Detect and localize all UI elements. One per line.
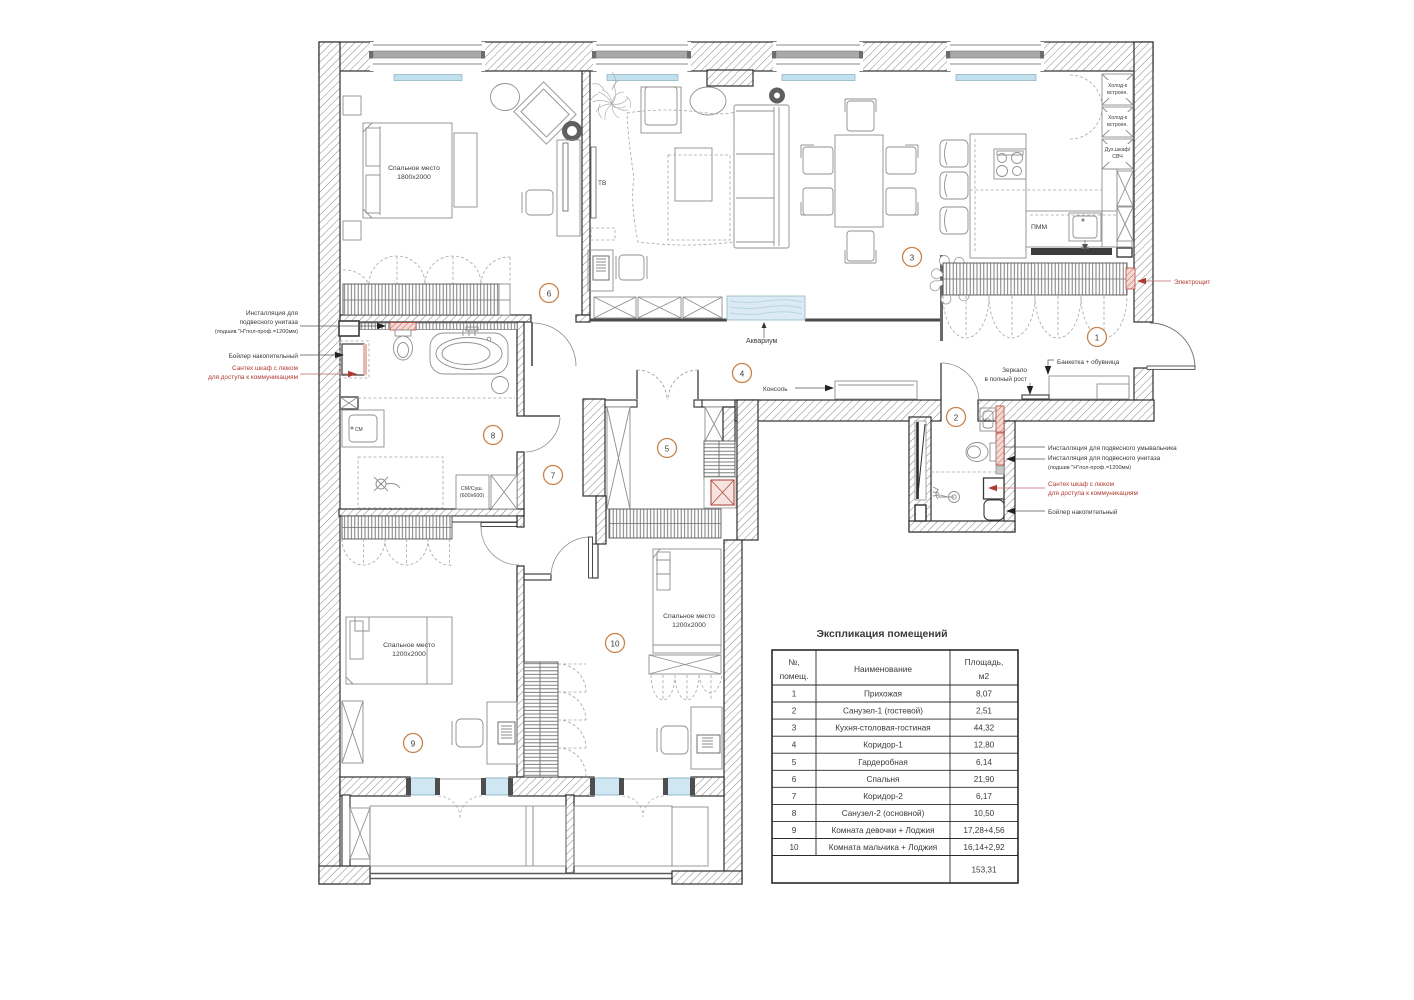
svg-text:Наименование: Наименование [854,664,912,674]
svg-text:СМ: СМ [355,427,363,433]
svg-text:2,51: 2,51 [976,707,992,716]
svg-text:8: 8 [792,809,797,818]
svg-text:1: 1 [792,690,797,699]
svg-text:Спальное место: Спальное место [388,165,440,172]
svg-text:1800х2000: 1800х2000 [397,174,431,181]
svg-text:Инсталляция для подвесного уни: Инсталляция для подвесного унитаза [1048,455,1161,462]
svg-text:44,32: 44,32 [974,724,995,733]
svg-text:Консоль: Консоль [763,386,788,393]
svg-text:153,31: 153,31 [971,866,996,875]
svg-text:6: 6 [547,290,552,299]
svg-text:ТВ: ТВ [598,180,606,187]
svg-text:1: 1 [1095,334,1100,343]
svg-text:№,: №, [788,657,799,667]
svg-text:12,80: 12,80 [974,741,995,750]
svg-text:СВЧ: СВЧ [1112,154,1123,160]
svg-text:16,14+2,92: 16,14+2,92 [963,843,1005,852]
svg-text:помещ.: помещ. [780,671,809,681]
svg-text:Аквариум: Аквариум [746,338,777,345]
svg-text:5: 5 [665,445,670,454]
svg-text:8: 8 [491,432,496,441]
svg-text:для доступа к коммуникациям: для доступа к коммуникациям [208,374,298,381]
svg-text:Электрощит: Электрощит [1174,279,1210,286]
svg-text:Спальное место: Спальное место [663,613,715,620]
svg-text:м2: м2 [979,671,990,681]
svg-text:Инсталляция для: Инсталляция для [246,310,299,317]
svg-text:4: 4 [740,370,745,379]
svg-text:встроен.: встроен. [1107,90,1128,96]
svg-text:для доступа к коммуникациям: для доступа к коммуникациям [1048,490,1138,497]
svg-text:Банкетка + обувница: Банкетка + обувница [1057,358,1120,366]
svg-text:5: 5 [792,758,797,767]
svg-text:(подшив "Н"пол-проф.=1200мм): (подшив "Н"пол-проф.=1200мм) [1048,465,1131,471]
svg-text:7: 7 [792,792,797,801]
svg-text:СМ/Суш.: СМ/Суш. [461,486,483,492]
svg-text:Зеркало: Зеркало [1002,367,1027,374]
svg-text:Сантех шкаф с люком: Сантех шкаф с люком [1048,481,1114,488]
svg-text:Комната девочки + Лоджия: Комната девочки + Лоджия [831,826,934,835]
svg-text:1200х2000: 1200х2000 [672,622,706,629]
svg-text:Комната мальчика + Лоджия: Комната мальчика + Лоджия [829,843,938,852]
svg-text:МСХ: МСХ [983,418,991,422]
svg-text:Прихожая: Прихожая [864,690,902,699]
svg-text:8,07: 8,07 [976,690,992,699]
svg-text:Инсталляция для подвесного умы: Инсталляция для подвесного умывальника [1048,445,1177,452]
svg-text:1200х2000: 1200х2000 [392,651,426,658]
svg-text:10: 10 [789,843,799,852]
svg-text:Площадь,: Площадь, [965,657,1004,667]
svg-text:Санузел-1 (гостевой): Санузел-1 (гостевой) [843,707,923,716]
svg-text:Бойлер накопительный: Бойлер накопительный [1048,508,1118,516]
svg-text:17,28+4,56: 17,28+4,56 [963,826,1005,835]
svg-text:Холод-к: Холод-к [1108,115,1128,121]
svg-text:7: 7 [551,472,556,481]
svg-text:Коридор-2: Коридор-2 [863,792,903,801]
svg-text:Санузел-2 (основной): Санузел-2 (основной) [842,809,925,818]
svg-text:2: 2 [792,707,797,716]
svg-text:6: 6 [792,775,797,784]
svg-text:3: 3 [910,254,915,263]
svg-text:2: 2 [954,414,959,423]
svg-text:в полный рост: в полный рост [985,375,1028,383]
svg-text:Холод-к: Холод-к [1108,83,1128,89]
svg-text:4: 4 [792,741,797,750]
svg-text:9: 9 [792,826,797,835]
svg-text:ПММ: ПММ [1031,224,1048,231]
svg-text:Спальня: Спальня [867,775,900,784]
svg-text:3: 3 [792,724,797,733]
svg-text:Бойлер накопительный: Бойлер накопительный [229,352,299,360]
svg-text:(подшив "Н"пол-проф.=1200мм): (подшив "Н"пол-проф.=1200мм) [215,329,298,335]
svg-text:Кухня-столовая-гостиная: Кухня-столовая-гостиная [835,724,930,733]
svg-text:21,90: 21,90 [974,775,995,784]
svg-text:Спальное место: Спальное место [383,642,435,649]
svg-text:(600х600): (600х600) [460,493,484,499]
svg-text:6,14: 6,14 [976,758,992,767]
svg-text:Коридор-1: Коридор-1 [863,741,903,750]
svg-text:9: 9 [411,740,416,749]
svg-text:встроен.: встроен. [1107,122,1128,128]
svg-text:6,17: 6,17 [976,792,992,801]
svg-text:Экспликация помещений: Экспликация помещений [816,628,947,640]
svg-text:Сантех шкаф с люком: Сантех шкаф с люком [232,365,298,372]
svg-text:подвесного унитаза: подвесного унитаза [240,319,299,326]
svg-text:10,50: 10,50 [974,809,995,818]
svg-text:Дух.шкаф/: Дух.шкаф/ [1105,147,1131,153]
svg-text:10: 10 [611,640,620,649]
svg-text:Гардеробная: Гардеробная [858,758,908,767]
